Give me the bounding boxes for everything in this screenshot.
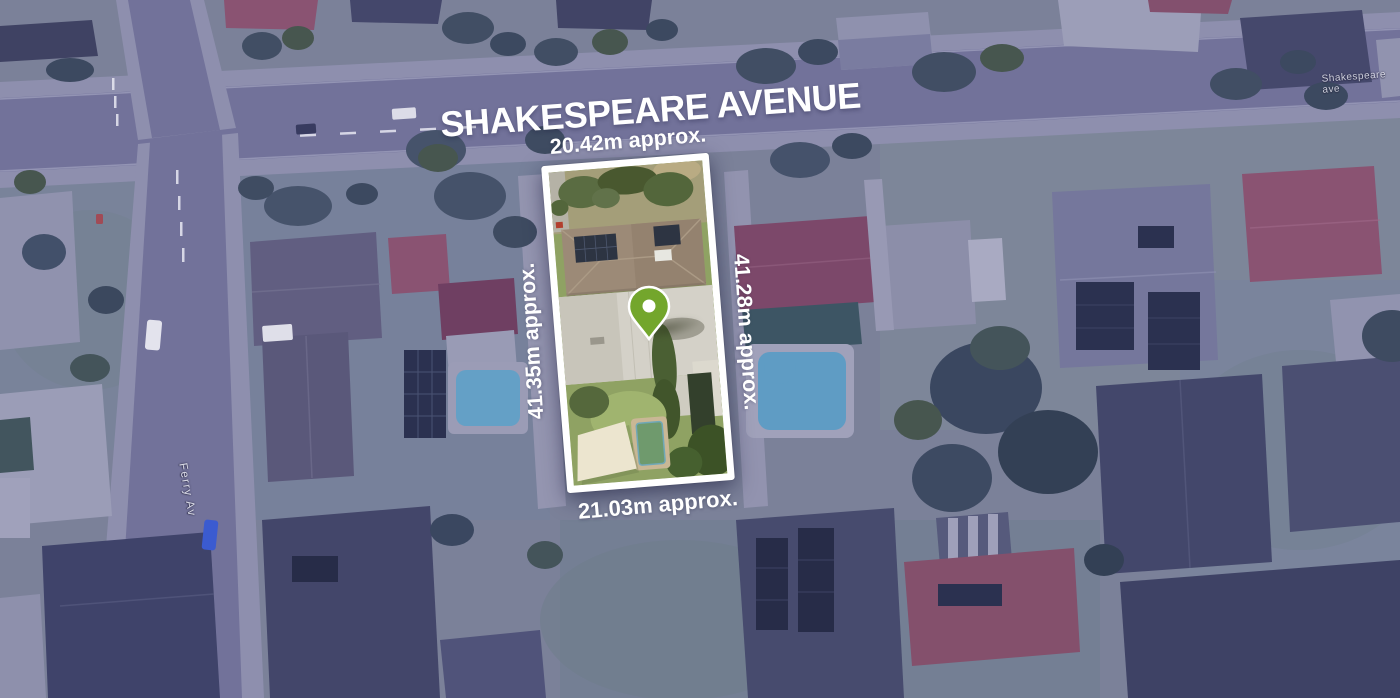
location-pin-icon: [627, 285, 671, 343]
pin-hole: [643, 300, 656, 313]
pin-body: [629, 287, 669, 339]
aerial-map-view: Ferry Av Shakespeare ave: [0, 0, 1400, 698]
